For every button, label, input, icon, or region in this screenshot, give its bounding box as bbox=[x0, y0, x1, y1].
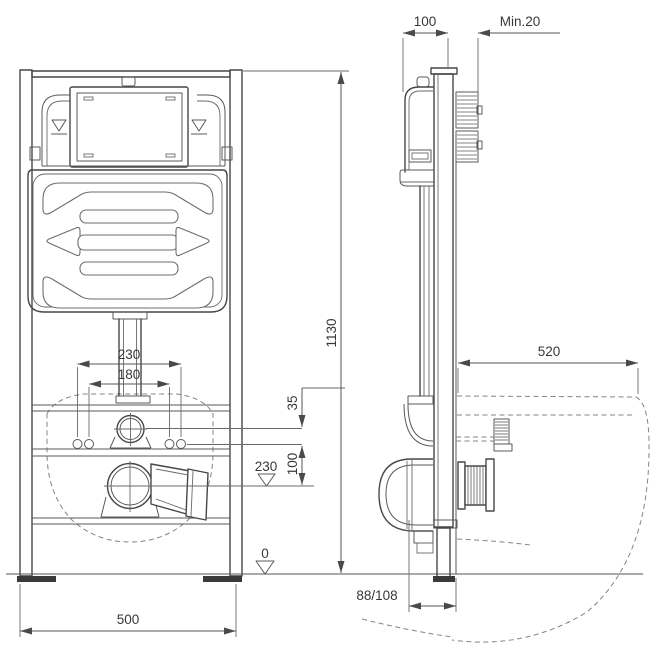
frame-top-crossbar bbox=[32, 71, 230, 77]
dim-label-frame-width: 500 bbox=[117, 612, 140, 627]
dim-frame-depth: 100 bbox=[403, 14, 478, 92]
panel-corner-mark bbox=[84, 97, 93, 100]
datum-drain-height: 230 bbox=[255, 459, 278, 486]
dim-drain-wall-distance: 88/108 bbox=[356, 520, 456, 612]
frame-left-post bbox=[20, 70, 32, 576]
frame-profile-leg bbox=[437, 528, 450, 577]
waste-outlet-front bbox=[101, 461, 208, 520]
dim-label-frame-depth: 100 bbox=[414, 14, 437, 29]
cistern-body bbox=[28, 170, 227, 312]
datum-triangle-icon bbox=[256, 561, 274, 574]
panel-corner-mark bbox=[84, 154, 93, 157]
right-shoulder bbox=[197, 95, 225, 166]
dim-bowl-depth: 520 bbox=[458, 344, 638, 394]
waste-outlet-connector bbox=[458, 459, 494, 511]
dim-label-fixing-inner: 180 bbox=[118, 367, 141, 382]
dim-offsets-35-100: 35 100 bbox=[285, 388, 302, 485]
datum-floor-level: 0 bbox=[256, 546, 274, 574]
dim-frame-width: 500 bbox=[20, 584, 236, 637]
dim-min-clearance: Min.20 bbox=[478, 14, 560, 33]
push-rod-tab bbox=[122, 77, 135, 86]
frame-profile-cap bbox=[431, 68, 457, 74]
water-inlet-connector bbox=[456, 419, 512, 451]
technical-drawing-canvas: 230 180 35 100 230 0 bbox=[0, 0, 650, 650]
outlet-elbow-cap bbox=[186, 469, 208, 520]
datum-triangle-icon bbox=[258, 474, 275, 486]
left-shoulder bbox=[42, 95, 70, 166]
frame-profile-foot bbox=[433, 576, 455, 582]
dim-label-bowl-depth: 520 bbox=[538, 344, 561, 359]
frame-right-foot bbox=[203, 576, 242, 582]
cistern-access-section bbox=[30, 87, 232, 170]
dim-label-drain-wall-distance: 88/108 bbox=[356, 588, 397, 603]
dim-label-min-clearance: Min.20 bbox=[500, 14, 541, 29]
datum-label-floor: 0 bbox=[261, 546, 269, 561]
waste-socket bbox=[414, 531, 433, 543]
frame-profile-bar bbox=[434, 74, 453, 527]
water-level-icon-left bbox=[51, 120, 67, 134]
wall-mounting-rail bbox=[456, 92, 482, 162]
flush-pipe-side bbox=[404, 186, 433, 446]
front-view: 230 180 35 100 230 0 bbox=[17, 70, 345, 637]
frame-mid-crossbar-upper bbox=[32, 405, 230, 411]
push-rod-cap bbox=[417, 77, 429, 87]
dim-label-supply-offset: 35 bbox=[285, 395, 300, 410]
dim-frame-height: 1130 bbox=[243, 71, 349, 573]
technical-drawing-page: 230 180 35 100 230 0 bbox=[0, 0, 650, 650]
frame-right-post bbox=[230, 70, 242, 576]
water-supply-connection bbox=[110, 413, 151, 448]
waste-bend-side bbox=[379, 459, 433, 553]
dim-label-frame-height: 1130 bbox=[324, 318, 339, 347]
water-level-icon-right bbox=[191, 120, 207, 134]
frame-left-foot bbox=[17, 576, 56, 582]
panel-corner-mark bbox=[166, 97, 175, 100]
access-panel-cover bbox=[77, 93, 182, 161]
cistern-profile-side bbox=[400, 77, 434, 186]
side-view: 100 Min.20 520 88/108 bbox=[356, 14, 649, 642]
cistern-cover-pattern bbox=[43, 183, 213, 308]
dim-label-fixing-outer: 230 bbox=[118, 347, 141, 362]
panel-corner-mark bbox=[166, 154, 175, 157]
datum-label-drain-height: 230 bbox=[255, 459, 278, 474]
dim-label-supply-to-drain: 100 bbox=[285, 453, 300, 476]
frame-mid-crossbar-lower bbox=[32, 449, 230, 456]
access-panel-frame bbox=[70, 87, 188, 167]
